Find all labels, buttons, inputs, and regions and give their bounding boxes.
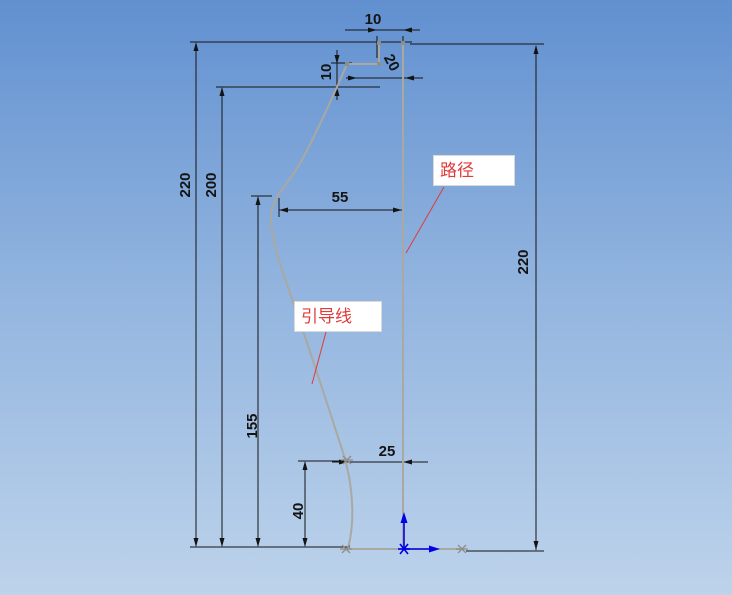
- arrowhead: [348, 76, 357, 81]
- arrowheads: [194, 28, 539, 551]
- annotation-leaders: [312, 187, 444, 384]
- arrowhead: [194, 538, 199, 547]
- sketch-canvas: [0, 0, 732, 595]
- arrowhead: [534, 541, 539, 550]
- guide-label[interactable]: 引导线: [294, 301, 382, 332]
- sketch-geometry: [271, 43, 464, 549]
- dimension-lines: [196, 30, 536, 550]
- endpoint-dot: [401, 41, 405, 45]
- extension-lines: [190, 36, 544, 551]
- dim-25[interactable]: 25: [367, 443, 407, 461]
- arrowhead: [279, 208, 288, 213]
- arrowhead: [220, 538, 225, 547]
- arrowhead: [534, 45, 539, 54]
- point-marker: [340, 545, 352, 553]
- cad-viewport: 10 20 10 220 200 55 155 40 25 220 路径 引导线: [0, 0, 732, 595]
- dim-10-top[interactable]: 10: [353, 11, 393, 29]
- arrowhead: [303, 461, 308, 470]
- arrowhead: [194, 42, 199, 51]
- arrowhead: [393, 208, 402, 213]
- top-segment[interactable]: [347, 43, 379, 64]
- origin-arrow-right-icon: [429, 546, 440, 553]
- arrowhead: [303, 538, 308, 547]
- point-marker: [456, 545, 468, 553]
- origin-arrow-up-icon: [401, 512, 408, 523]
- dim-55[interactable]: 55: [320, 189, 360, 207]
- arrowhead: [256, 538, 261, 547]
- dim-220-left[interactable]: 220: [177, 165, 195, 205]
- path-label-leader: [406, 187, 444, 253]
- origin-marker[interactable]: [398, 512, 440, 554]
- path-label[interactable]: 路径: [433, 155, 515, 186]
- endpoint-dot: [377, 41, 381, 45]
- dim-40[interactable]: 40: [290, 491, 308, 531]
- arrowhead: [256, 196, 261, 205]
- endpoint-dot: [345, 62, 349, 66]
- dim-10-left[interactable]: 10: [318, 52, 336, 92]
- dim-220-right[interactable]: 220: [515, 242, 533, 282]
- arrowhead: [220, 87, 225, 96]
- arrowhead: [403, 28, 412, 33]
- dim-155[interactable]: 155: [244, 406, 262, 446]
- dim-200[interactable]: 200: [203, 165, 221, 205]
